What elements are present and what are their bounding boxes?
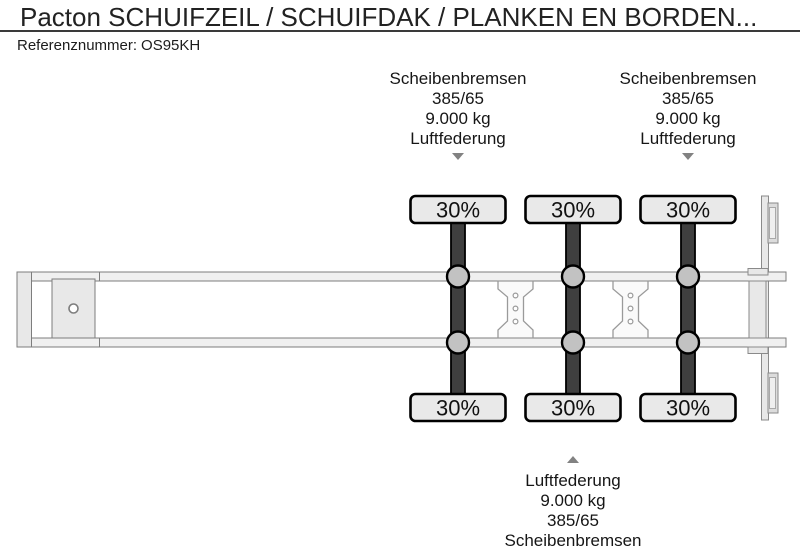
tire-load-value: 30% xyxy=(436,396,480,421)
rear-bracket-top xyxy=(748,269,768,276)
rail-top xyxy=(17,272,786,281)
kingpin xyxy=(69,304,78,313)
tire-load-value: 30% xyxy=(666,198,710,223)
tire-load-value: 30% xyxy=(551,198,595,223)
bolt-hole xyxy=(628,306,633,311)
tire-load-value: 30% xyxy=(666,396,710,421)
axle-2: 30% 30% xyxy=(526,196,621,421)
bolt-hole xyxy=(513,319,518,324)
wheel-hub-bottom xyxy=(447,332,469,354)
axle-1: 30% 30% xyxy=(411,196,506,421)
front-end xyxy=(17,272,95,347)
tire-load-value: 30% xyxy=(551,396,595,421)
bolt-hole xyxy=(513,306,518,311)
bolt-hole xyxy=(513,293,518,298)
axle-bar xyxy=(566,223,580,394)
rear-crossmember xyxy=(749,281,766,338)
crossmember-2 xyxy=(613,281,648,338)
wheel-hub-top xyxy=(677,266,699,288)
axle-bar xyxy=(451,223,465,394)
crossmember-1 xyxy=(498,281,533,338)
rear-light-top-lens xyxy=(770,208,776,239)
tire-load-value: 30% xyxy=(436,198,480,223)
wheel-hub-bottom xyxy=(677,332,699,354)
rear-bracket-bottom xyxy=(748,347,768,354)
listing-page: Pacton SCHUIFZEIL / SCHUIFDAK / PLANKEN … xyxy=(0,0,800,552)
rail-bottom xyxy=(17,338,786,347)
bolt-hole xyxy=(628,293,633,298)
front-crossmember xyxy=(17,272,32,347)
wheel-hub-top xyxy=(447,266,469,288)
rear-light-bottom-lens xyxy=(770,378,776,409)
axle-bar xyxy=(681,223,695,394)
wheel-hub-bottom xyxy=(562,332,584,354)
bolt-hole xyxy=(628,319,633,324)
wheel-hub-top xyxy=(562,266,584,288)
axle-3: 30% 30% xyxy=(641,196,736,421)
chassis-rails xyxy=(17,272,786,347)
chassis-drawing: 30% 30% 30% 30% 30% 30% xyxy=(0,0,800,552)
axle-configuration-diagram: Scheibenbremsen 385/65 9.000 kg Luftfede… xyxy=(0,0,800,552)
